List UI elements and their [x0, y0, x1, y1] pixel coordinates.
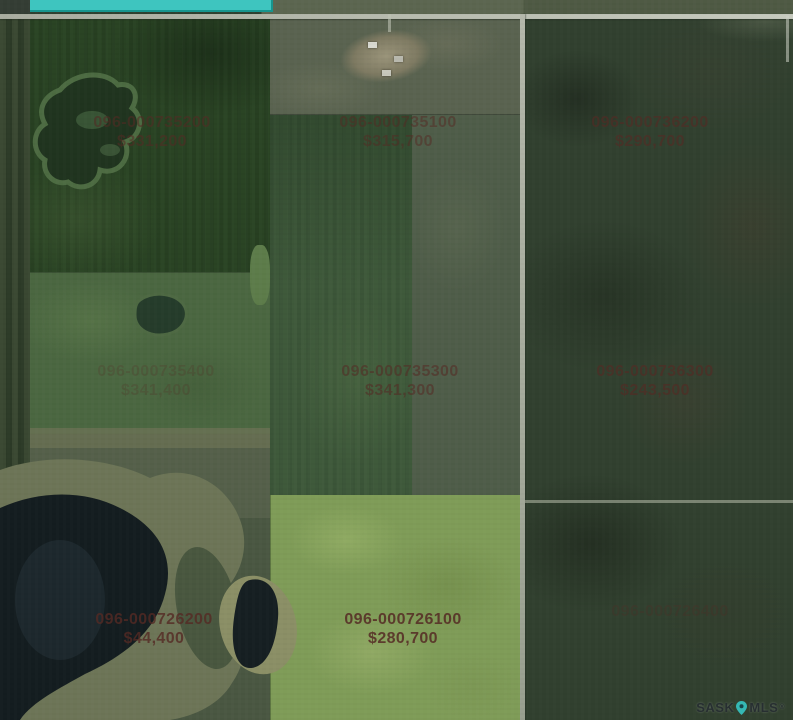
watermark-sask-text: SASK [696, 700, 734, 715]
map-canvas[interactable]: 096-000735200$331,200096-000735100$315,7… [0, 0, 793, 720]
parcel-label[interactable]: 096-000736200$290,700 [591, 113, 708, 151]
parcel-price: $341,400 [97, 381, 214, 400]
parcel-price: $290,700 [591, 132, 708, 151]
parcel-price: $341,300 [341, 381, 458, 400]
parcel-label[interactable]: 096-000726200$44,400 [95, 610, 212, 648]
parcel-label[interactable]: 096-000735300$341,300 [341, 362, 458, 400]
parcel-id: 096-000726200 [95, 610, 212, 629]
parcel-label[interactable]: 096-000735400$341,400 [97, 362, 214, 400]
parcel-price: $243,500 [596, 381, 713, 400]
selection-rectangle[interactable] [30, 0, 273, 12]
watermark-mls-text: MLS [749, 700, 778, 715]
parcel-price: $331,200 [93, 132, 210, 151]
parcel-id: 096-000735300 [341, 362, 458, 381]
parcel-labels-layer: 096-000735200$331,200096-000735100$315,7… [0, 0, 793, 720]
parcel-price: $280,700 [344, 629, 461, 648]
parcel-id: 096-000735100 [339, 113, 456, 132]
map-pin-icon [736, 701, 747, 715]
parcel-label[interactable]: 096-000735200$331,200 [93, 113, 210, 151]
parcel-id: 096-000735400 [97, 362, 214, 381]
parcel-price: $44,400 [95, 629, 212, 648]
parcel-id: 096-000736300 [596, 362, 713, 381]
parcel-id: 096-000735200 [93, 113, 210, 132]
watermark-registered-mark: ® [779, 704, 785, 711]
parcel-id: 096-000736200 [591, 113, 708, 132]
parcel-label[interactable]: 096-000726400 [611, 602, 728, 621]
parcel-label[interactable]: 096-000726100$280,700 [344, 610, 461, 648]
parcel-label[interactable]: 096-000736300$243,500 [596, 362, 713, 400]
parcel-label[interactable]: 096-000735100$315,700 [339, 113, 456, 151]
sask-mls-watermark: SASK MLS® [696, 700, 785, 715]
parcel-price: $315,700 [339, 132, 456, 151]
parcel-id: 096-000726100 [344, 610, 461, 629]
parcel-id: 096-000726400 [611, 602, 728, 621]
